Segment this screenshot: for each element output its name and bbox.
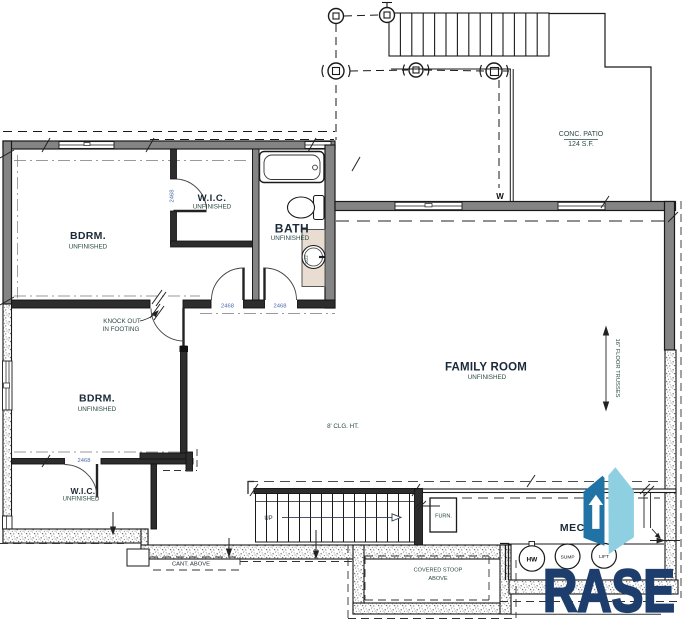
svg-text:UNFINISHED: UNFINISHED: [271, 235, 310, 242]
svg-text:ABOVE: ABOVE: [428, 576, 448, 582]
svg-text:UP: UP: [264, 516, 272, 522]
svg-text:UNFINISHED: UNFINISHED: [63, 497, 100, 503]
svg-text:IN FOOTING: IN FOOTING: [103, 326, 140, 333]
svg-text:2468: 2468: [78, 458, 91, 464]
svg-text:2468: 2468: [221, 304, 234, 310]
svg-text:KNOCK OUT: KNOCK OUT: [103, 318, 141, 325]
svg-text:124 S.F.: 124 S.F.: [568, 141, 594, 148]
svg-text:W: W: [496, 192, 504, 201]
svg-text:8' CLG. HT.: 8' CLG. HT.: [327, 423, 359, 430]
svg-text:2468: 2468: [170, 190, 176, 203]
svg-text:UNFINISHED: UNFINISHED: [78, 406, 117, 413]
svg-text:16" FLOOR TRUSSES: 16" FLOOR TRUSSES: [614, 339, 620, 398]
svg-text:UNFINISHED: UNFINISHED: [468, 374, 507, 381]
svg-text:CANT. ABOVE: CANT. ABOVE: [172, 562, 210, 568]
svg-text:W.I.C.: W.I.C.: [71, 486, 96, 496]
svg-text:BDRM.: BDRM.: [70, 230, 106, 242]
svg-text:2022: 2022: [304, 255, 309, 265]
svg-text:CONC. PATIO: CONC. PATIO: [559, 131, 604, 138]
svg-text:RASE: RASE: [543, 558, 675, 620]
svg-text:FURN.: FURN.: [435, 514, 452, 520]
svg-text:2468: 2468: [274, 304, 287, 310]
svg-text:UNFINISHED: UNFINISHED: [69, 244, 108, 251]
svg-text:BDRM.: BDRM.: [79, 393, 115, 405]
svg-text:UNFINISHED: UNFINISHED: [193, 204, 232, 211]
svg-text:W.I.C.: W.I.C.: [198, 193, 227, 204]
svg-text:COVERED STOOP: COVERED STOOP: [414, 568, 463, 574]
svg-text:BATH: BATH: [275, 222, 309, 236]
svg-text:FAMILY ROOM: FAMILY ROOM: [445, 362, 527, 374]
svg-text:HW: HW: [526, 557, 538, 564]
